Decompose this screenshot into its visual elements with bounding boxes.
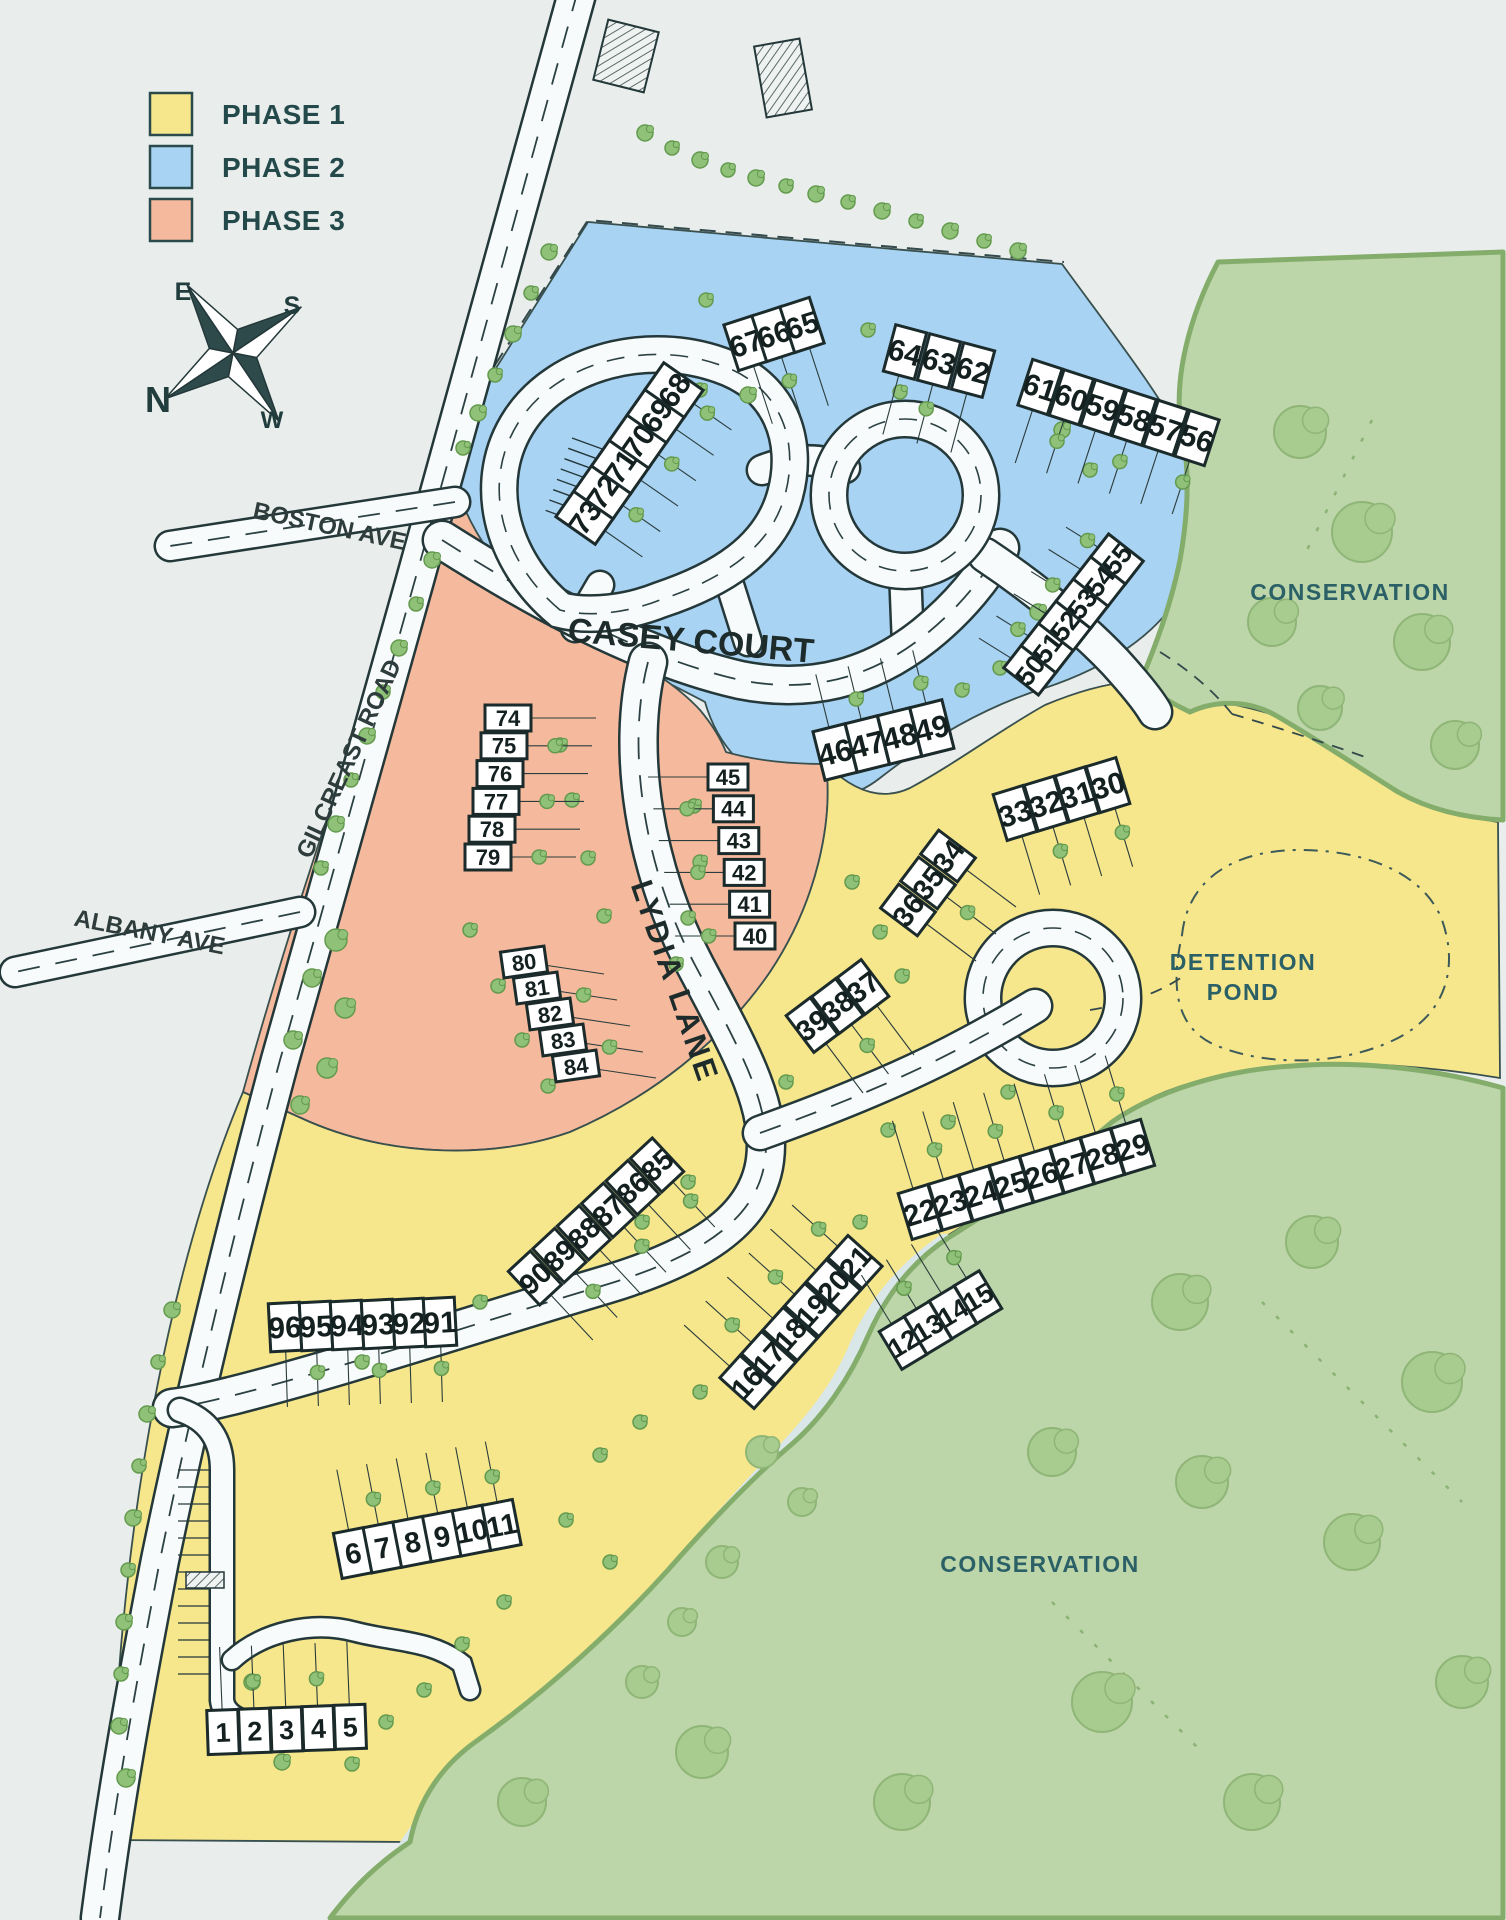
- lot-number-94: 94: [330, 1309, 365, 1344]
- tree-icon: [473, 1295, 487, 1309]
- tree-icon: [977, 234, 991, 248]
- compass-s: S: [284, 292, 301, 320]
- tree-icon: [463, 923, 477, 937]
- lot-number-79: 79: [476, 845, 500, 870]
- tree-icon: [1080, 534, 1094, 548]
- tree-icon: [455, 1637, 469, 1651]
- tree-icon: [335, 998, 356, 1018]
- tree-icon: [456, 441, 470, 455]
- tree-icon: [116, 1614, 133, 1630]
- tree-icon: [541, 244, 558, 260]
- tree-icon: [1113, 455, 1127, 469]
- tree-icon: [782, 374, 796, 388]
- tree-icon: [721, 163, 735, 177]
- tree-icon: [748, 170, 765, 186]
- lot-number-81: 81: [523, 974, 551, 1002]
- tree-icon: [665, 141, 679, 155]
- lot-number-93: 93: [361, 1308, 396, 1343]
- tree-icon: [491, 979, 505, 993]
- tree-icon: [637, 125, 654, 141]
- tree-icon: [602, 1040, 616, 1054]
- lot-number-92: 92: [392, 1307, 427, 1342]
- tree-icon: [874, 203, 891, 219]
- lot-number-11: 11: [484, 1508, 520, 1545]
- tree-icon: [1083, 463, 1097, 477]
- tree-icon: [485, 1470, 499, 1484]
- parking-hatch-pad: [186, 1572, 224, 1588]
- tree-icon: [541, 1079, 555, 1093]
- tree-icon: [379, 1715, 393, 1729]
- tree-icon: [941, 1115, 955, 1129]
- lot-number-82: 82: [536, 1000, 564, 1028]
- lot-number-44: 44: [721, 797, 746, 822]
- tree-icon: [841, 195, 855, 209]
- tree-icon: [914, 676, 928, 690]
- tree-icon: [317, 1058, 338, 1078]
- conservation-tree-icon: [788, 1488, 817, 1516]
- tree-icon: [693, 1385, 707, 1399]
- tree-icon: [246, 1674, 260, 1688]
- tree-icon: [366, 1492, 380, 1506]
- conservation-tree-icon: [668, 1608, 697, 1636]
- lot-number-78: 78: [480, 817, 504, 842]
- tree-icon: [593, 1448, 607, 1462]
- tree-icon: [309, 1672, 323, 1686]
- tree-icon: [740, 387, 757, 403]
- conservation-top-label: CONSERVATION: [1250, 579, 1449, 605]
- tree-icon: [988, 1124, 1002, 1138]
- lot-number-76: 76: [488, 762, 512, 787]
- lot-number-96: 96: [268, 1311, 303, 1346]
- tree-icon: [409, 597, 423, 611]
- tree-icon: [426, 1481, 440, 1495]
- legend-swatch-phase1: [150, 93, 192, 135]
- lot-number-43: 43: [727, 829, 751, 854]
- lot-number-42: 42: [732, 860, 756, 885]
- tree-icon: [860, 1038, 874, 1052]
- detention-pond-label-line2: POND: [1207, 979, 1279, 1005]
- tree-icon: [497, 1595, 511, 1609]
- tree-icon: [139, 1406, 156, 1422]
- tree-icon: [700, 406, 714, 420]
- tree-icon: [1049, 1106, 1063, 1120]
- tree-icon: [845, 875, 859, 889]
- tree-icon: [565, 793, 579, 807]
- tree-icon: [548, 739, 562, 753]
- tree-icon: [345, 1757, 359, 1771]
- legend-swatch-phase2: [150, 146, 192, 188]
- site-plan-page: 7372717069686766656463626160595857565051…: [0, 0, 1506, 1920]
- tree-icon: [274, 1754, 291, 1770]
- lot-number-77: 77: [484, 789, 508, 814]
- tree-icon: [417, 1683, 431, 1697]
- conservation-bottom-label: CONSERVATION: [940, 1551, 1139, 1577]
- tree-icon: [515, 1033, 529, 1047]
- lot-number-3: 3: [279, 1715, 295, 1746]
- lot-number-41: 41: [737, 892, 761, 917]
- tree-icon: [1001, 1085, 1015, 1099]
- tree-icon: [853, 1215, 867, 1229]
- legend-label-phase1: PHASE 1: [222, 99, 345, 130]
- tree-icon: [779, 1075, 793, 1089]
- tree-icon: [532, 850, 546, 864]
- tree-icon: [355, 1355, 369, 1369]
- lot-number-4: 4: [310, 1714, 326, 1745]
- legend: PHASE 1 PHASE 2 PHASE 3: [150, 93, 345, 241]
- tree-icon: [909, 214, 923, 228]
- tree-icon: [291, 1096, 310, 1114]
- lot-number-1: 1: [215, 1717, 231, 1748]
- tree-icon: [702, 929, 716, 943]
- tree-icon: [942, 223, 959, 239]
- lot-number-45: 45: [716, 765, 740, 790]
- tree-icon: [665, 457, 679, 471]
- lot-number-2: 2: [247, 1716, 263, 1747]
- tree-icon: [121, 1563, 135, 1577]
- tree-icon: [132, 1459, 146, 1473]
- tree-icon: [325, 929, 348, 951]
- tree-icon: [164, 1302, 181, 1318]
- lot-number-84: 84: [562, 1052, 590, 1080]
- tree-icon: [1110, 1087, 1124, 1101]
- tree-icon: [117, 1769, 136, 1787]
- tree-icon: [725, 1318, 739, 1332]
- tree-icon: [635, 1239, 649, 1253]
- tree-icon: [779, 179, 793, 193]
- lot-number-40: 40: [743, 924, 767, 949]
- tree-icon: [681, 1175, 695, 1189]
- tree-icon: [691, 865, 705, 879]
- tree-icon: [559, 1513, 573, 1527]
- tree-icon: [586, 1284, 600, 1298]
- tree-icon: [111, 1718, 128, 1734]
- tree-icon: [488, 368, 502, 382]
- tree-icon: [125, 1510, 142, 1526]
- compass-n: N: [145, 379, 171, 420]
- tree-icon: [151, 1355, 165, 1369]
- tree-icon: [897, 1281, 911, 1295]
- tree-icon: [576, 988, 590, 1002]
- conservation-tree-icon: [746, 1436, 780, 1468]
- tree-icon: [895, 969, 909, 983]
- site-plan-map: 7372717069686766656463626160595857565051…: [0, 0, 1506, 1920]
- tree-icon: [581, 851, 595, 865]
- tree-icon: [597, 909, 611, 923]
- lot-number-83: 83: [549, 1026, 577, 1054]
- tree-icon: [303, 969, 322, 987]
- tree-icon: [372, 1363, 386, 1377]
- tree-icon: [812, 1222, 826, 1236]
- tree-icon: [947, 1251, 961, 1265]
- tree-icon: [1046, 578, 1060, 592]
- conservation-tree-icon: [706, 1546, 740, 1578]
- lot-number-95: 95: [299, 1310, 334, 1345]
- lot-number-74: 74: [496, 706, 521, 731]
- tree-icon: [434, 1361, 448, 1375]
- lot-number-75: 75: [492, 734, 516, 759]
- tree-icon: [849, 692, 863, 706]
- tree-icon: [629, 508, 643, 522]
- tree-icon: [699, 293, 713, 307]
- tree-icon: [919, 402, 933, 416]
- conservation-tree-icon: [626, 1666, 660, 1698]
- tree-icon: [768, 1270, 782, 1284]
- tree-icon: [873, 925, 887, 939]
- compass-w: W: [261, 407, 284, 434]
- tree-icon: [424, 552, 441, 568]
- tree-icon: [284, 1031, 303, 1049]
- tree-icon: [391, 640, 408, 656]
- tree-icon: [1053, 844, 1067, 858]
- tree-icon: [633, 1415, 647, 1429]
- tree-icon: [1050, 434, 1064, 448]
- tree-icon: [960, 906, 974, 920]
- tree-icon: [927, 1143, 941, 1157]
- legend-label-phase3: PHASE 3: [222, 205, 345, 236]
- tree-icon: [470, 405, 487, 421]
- tree-icon: [603, 1555, 617, 1569]
- tree-icon: [524, 286, 538, 300]
- tree-icon: [808, 186, 825, 202]
- tree-icon: [314, 861, 328, 875]
- tree-icon: [1176, 475, 1190, 489]
- compass-e: E: [175, 278, 192, 306]
- tree-icon: [540, 794, 554, 808]
- tree-icon: [692, 152, 709, 168]
- tree-icon: [955, 683, 969, 697]
- tree-icon: [1010, 243, 1027, 259]
- lot-number-91: 91: [423, 1306, 458, 1341]
- tree-icon: [635, 1215, 649, 1229]
- tree-icon: [1011, 622, 1025, 636]
- tree-icon: [680, 802, 694, 816]
- tree-icon: [1115, 825, 1129, 839]
- legend-swatch-phase3: [150, 199, 192, 241]
- tree-icon: [861, 323, 875, 337]
- tree-icon: [681, 911, 695, 925]
- lot-number-5: 5: [342, 1712, 358, 1743]
- tree-icon: [505, 326, 522, 342]
- tree-icon: [684, 1194, 698, 1208]
- tree-icon: [310, 1365, 324, 1379]
- detention-pond-label-line1: DETENTION: [1170, 949, 1316, 975]
- tree-icon: [114, 1667, 128, 1681]
- lot-number-80: 80: [510, 948, 538, 976]
- legend-label-phase2: PHASE 2: [222, 152, 345, 183]
